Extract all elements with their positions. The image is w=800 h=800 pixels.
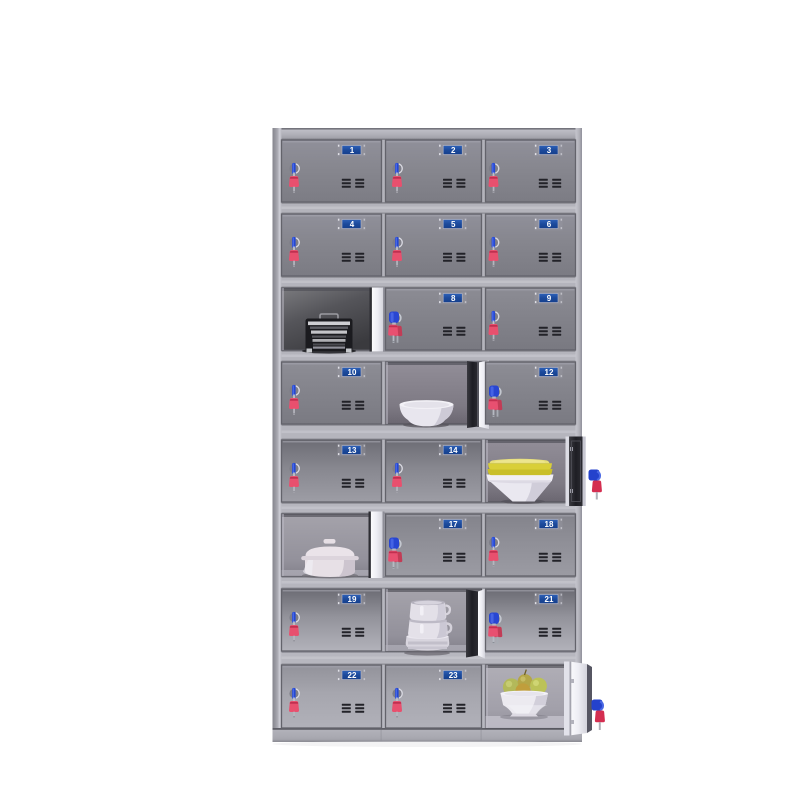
svg-text:2: 2 [451, 146, 456, 155]
svg-text:13: 13 [348, 446, 357, 455]
svg-text:3: 3 [547, 146, 552, 155]
svg-text:17: 17 [449, 520, 458, 529]
svg-text:9: 9 [547, 294, 552, 303]
svg-text:21: 21 [545, 595, 554, 604]
svg-text:23: 23 [449, 671, 458, 680]
svg-text:10: 10 [348, 368, 357, 377]
svg-text:8: 8 [451, 294, 456, 303]
svg-text:22: 22 [348, 671, 357, 680]
svg-text:19: 19 [348, 595, 357, 604]
svg-text:4: 4 [350, 220, 355, 229]
svg-text:6: 6 [547, 220, 552, 229]
svg-text:1: 1 [350, 146, 355, 155]
svg-text:12: 12 [545, 368, 554, 377]
svg-text:5: 5 [451, 220, 456, 229]
svg-text:14: 14 [449, 446, 458, 455]
svg-text:18: 18 [545, 520, 554, 529]
